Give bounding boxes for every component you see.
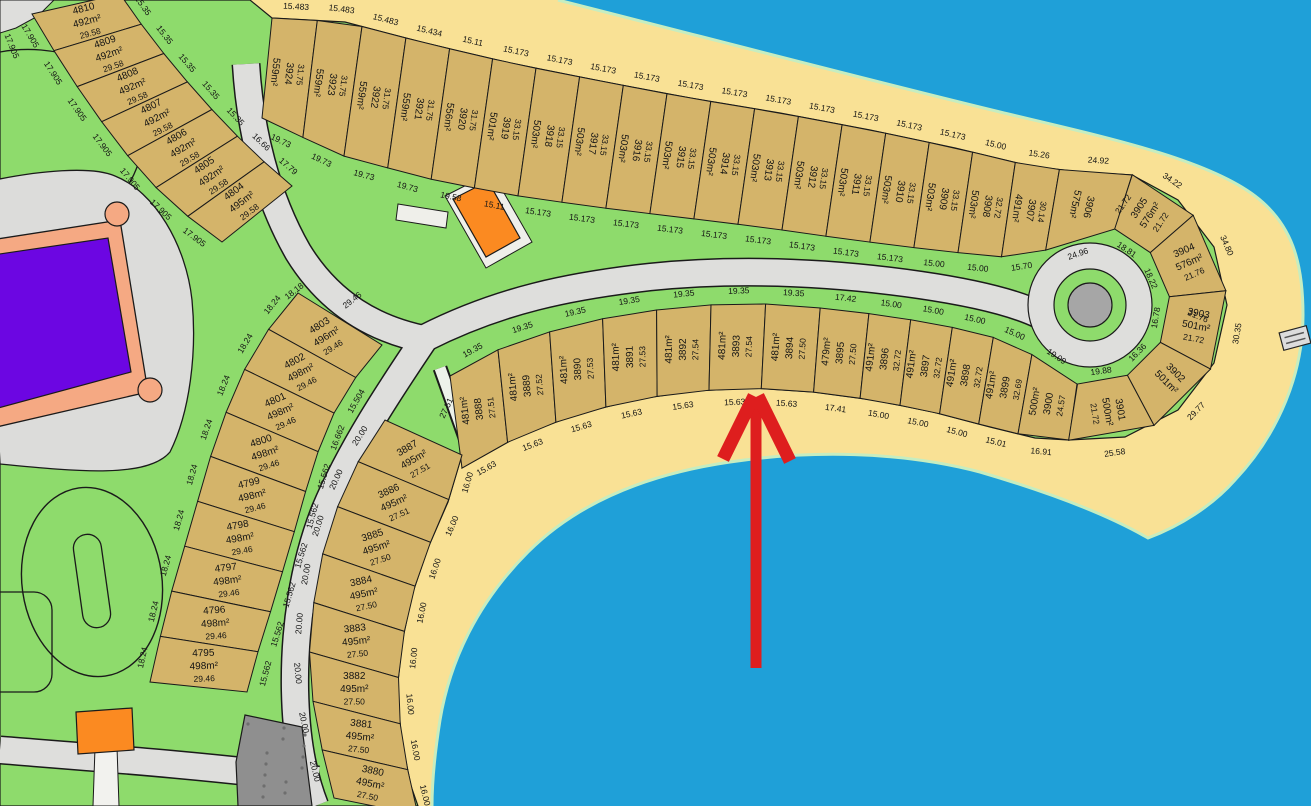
building-frame-corner (105, 202, 129, 226)
plot-map: 3924559m²31.7519.7315.4833923559m²31.751… (0, 0, 1311, 806)
parcel-dim-label: 29.46 (205, 630, 227, 641)
frontage-dim-label: 20.00 (292, 662, 304, 684)
parcel-dim-label: 29.46 (193, 673, 215, 684)
parcel-number-label: 3882 (343, 671, 366, 682)
parcel-dim-label: 27.53 (637, 346, 647, 368)
frontage-dim-label: 16.00 (404, 693, 416, 715)
parcel-area-label: 481m² (664, 335, 675, 364)
gravel-texture (263, 773, 266, 776)
parcel-dim-label: 27.50 (344, 697, 366, 707)
parcel-number-label: 3892 (678, 338, 689, 361)
gravel-texture (265, 751, 268, 754)
gravel-texture (300, 766, 303, 769)
gravel-texture (302, 744, 305, 747)
parcel-dim-label: 27.52 (533, 374, 545, 396)
gravel-texture (281, 737, 284, 740)
frontage-dim-label: 15.483 (283, 1, 310, 12)
parcel-area-label: 481m² (558, 355, 570, 385)
gravel-texture (246, 722, 249, 725)
parcel-area-label: 498m² (201, 617, 231, 630)
frontage-dim-label: 20.00 (293, 612, 305, 634)
cul-de-sac-center (1068, 283, 1112, 327)
gravel-texture (261, 795, 264, 798)
parcel-number-label: 4795 (192, 648, 215, 660)
parcel-dim-label: 27.53 (585, 357, 596, 379)
frontage-dim-label: 19.35 (783, 287, 805, 298)
parcel-number-label: 3890 (572, 357, 584, 380)
parcel-number-label: 3894 (784, 336, 796, 359)
parcel-dim-label: 27.50 (847, 343, 859, 365)
parcel-number-label: 3895 (834, 341, 847, 365)
frontage-dim-label: 24.92 (1088, 155, 1110, 166)
parcel-area-label: 481m² (770, 332, 783, 362)
parcel-area-label: 481m² (611, 342, 623, 371)
path-southwest (93, 747, 119, 806)
parcel-dim-label: 27.54 (743, 336, 754, 358)
parcel-dim-label: 27.54 (690, 339, 700, 361)
parcel-dim-label: 27.50 (796, 338, 807, 360)
parcel-area-label: 498m² (189, 660, 218, 672)
gravel-texture (301, 755, 304, 758)
frontage-dim-label: 19.35 (728, 285, 750, 296)
gravel-texture (303, 733, 306, 736)
parcel-number-label: 3891 (625, 345, 636, 368)
parcel-area-label: 481m² (717, 331, 729, 360)
building-frame-corner (138, 378, 162, 402)
orange-building-southwest (76, 708, 134, 754)
frontage-dim-label: 16.91 (1030, 445, 1052, 457)
gravel-texture (264, 762, 267, 765)
gravel-texture (262, 784, 265, 787)
frontage-dim-label: 15.63 (776, 398, 798, 409)
parcel-number-label: 3893 (731, 334, 743, 357)
gravel-texture (282, 726, 285, 729)
gravel-texture (283, 791, 286, 794)
parcel-area-label: 495m² (340, 684, 369, 695)
gravel-texture (284, 780, 287, 783)
parcel-number-label: 4796 (203, 605, 226, 618)
parcel-number-label: 3889 (521, 374, 534, 398)
